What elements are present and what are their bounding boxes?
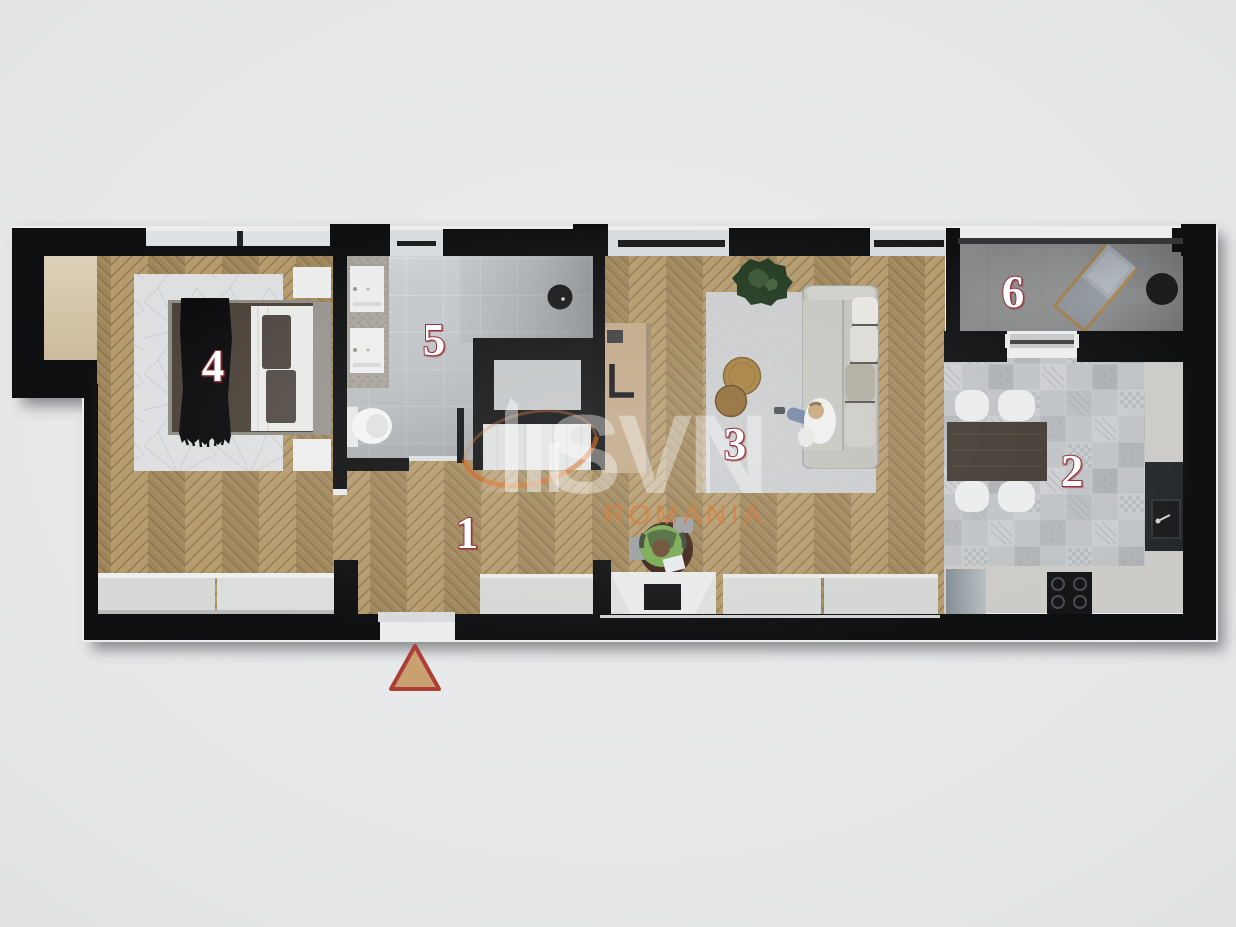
svg-text:6: 6 <box>1002 267 1025 317</box>
svg-text:5: 5 <box>423 315 446 365</box>
svg-text:4: 4 <box>202 341 225 391</box>
svg-text:ROMANIA: ROMANIA <box>604 499 766 530</box>
svg-text:1: 1 <box>456 508 479 558</box>
svg-text:2: 2 <box>1061 446 1084 496</box>
svg-text:3: 3 <box>724 419 747 469</box>
